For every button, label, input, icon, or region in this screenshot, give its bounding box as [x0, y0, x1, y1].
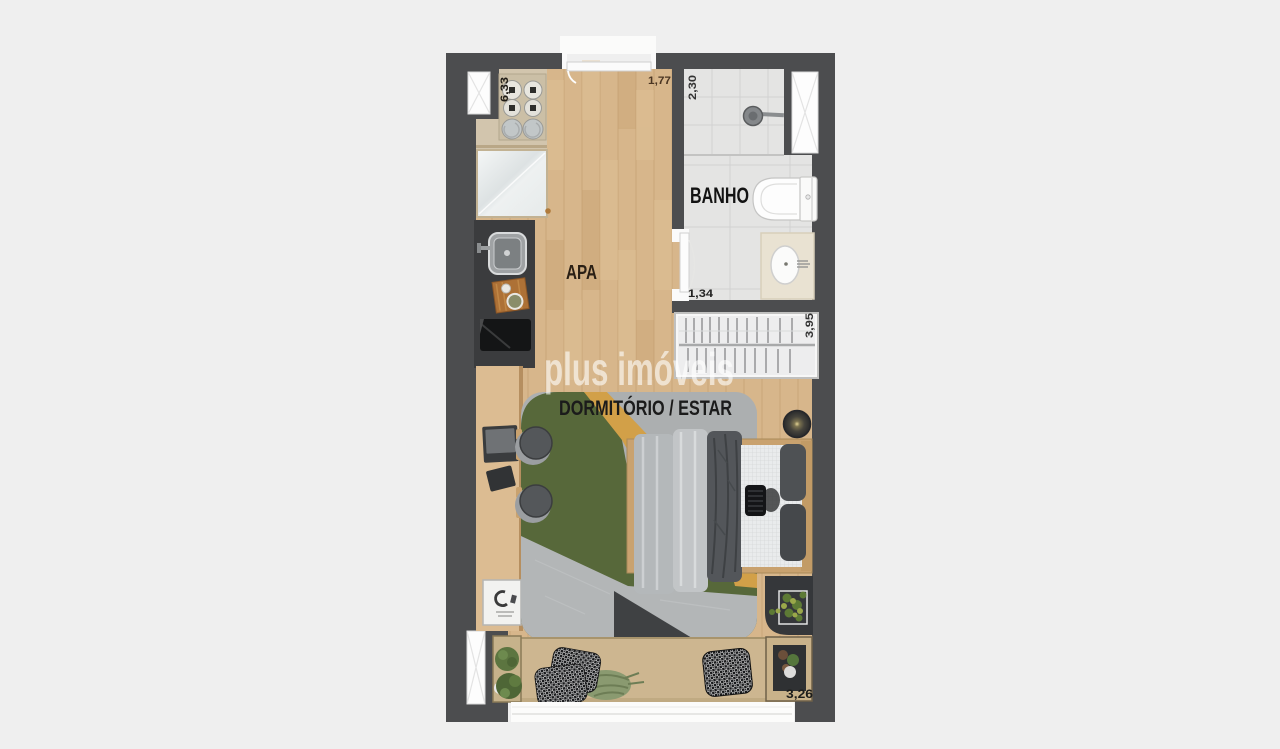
svg-text:APA: APA: [566, 262, 597, 284]
svg-text:2,30: 2,30: [687, 75, 699, 100]
svg-text:3,95: 3,95: [804, 313, 816, 338]
svg-text:plus imóveis: plus imóveis: [544, 343, 734, 395]
svg-text:6,33: 6,33: [499, 77, 511, 102]
svg-text:1,77: 1,77: [648, 75, 671, 87]
svg-text:BANHO: BANHO: [690, 183, 749, 208]
svg-text:DORMITÓRIO / ESTAR: DORMITÓRIO / ESTAR: [559, 396, 732, 420]
svg-text:1,34: 1,34: [688, 288, 714, 300]
svg-text:3,26: 3,26: [786, 687, 813, 701]
